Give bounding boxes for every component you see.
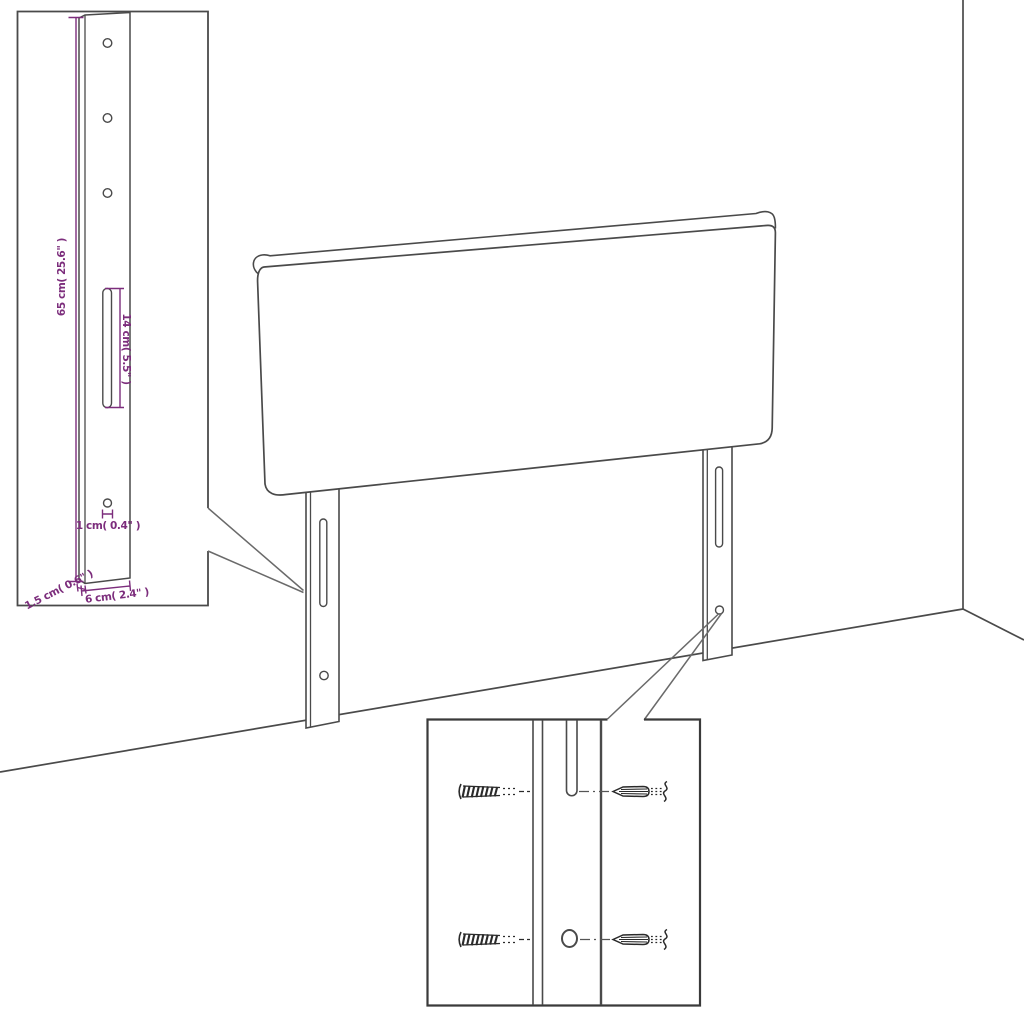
- dimension-label-hole: 1 cm( 0.4" ): [76, 520, 140, 532]
- mounting-detail-inset: [428, 720, 701, 1006]
- callout-left-leg: [208, 508, 304, 593]
- headboard-panel: [253, 212, 775, 495]
- line-art: [0, 0, 1024, 1024]
- inset-leg: [79, 13, 130, 584]
- leg-detail-inset: [18, 12, 209, 606]
- floor-line-right: [963, 609, 1024, 640]
- callout-lines: [208, 508, 722, 720]
- headboard-left-leg: [306, 466, 339, 728]
- dimension-label-slot: 14 cm( 5.5" ): [120, 313, 132, 384]
- headboard-assembly-diagram: 65 cm( 25.6" ) 14 cm( 5.5" ) 1 cm( 0.4" …: [0, 0, 1024, 1024]
- headboard-front-face: [258, 225, 776, 495]
- dimension-label-height: 65 cm( 25.6" ): [56, 238, 68, 316]
